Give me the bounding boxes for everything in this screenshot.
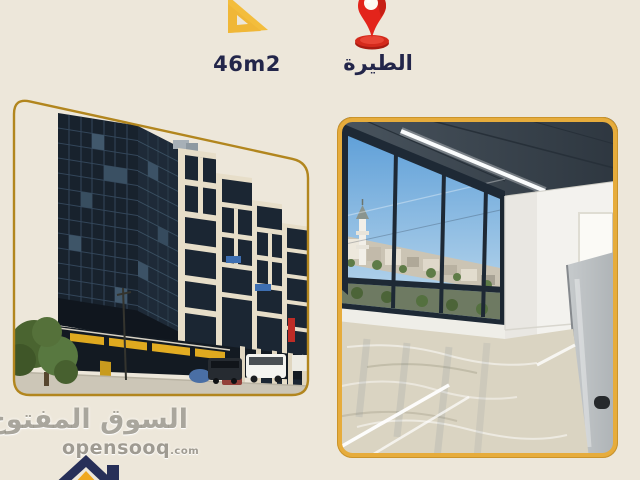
watermark-arabic: السوق المفتوح bbox=[18, 404, 188, 435]
set-square-ruler-icon bbox=[225, 0, 271, 38]
interior-photo-frame bbox=[337, 117, 618, 458]
interior-photo bbox=[337, 117, 618, 458]
listing-image: 46m2 الطيرة bbox=[0, 0, 640, 480]
map-pin-icon bbox=[348, 0, 396, 53]
location-name: الطيرة bbox=[338, 51, 418, 75]
watermark-logo-icon bbox=[50, 452, 134, 480]
exterior-photo-frame bbox=[0, 88, 320, 400]
area-value: 46m2 bbox=[204, 52, 290, 76]
exterior-photo bbox=[0, 88, 320, 400]
watermark: السوق المفتوح opensooq.com bbox=[0, 400, 220, 480]
